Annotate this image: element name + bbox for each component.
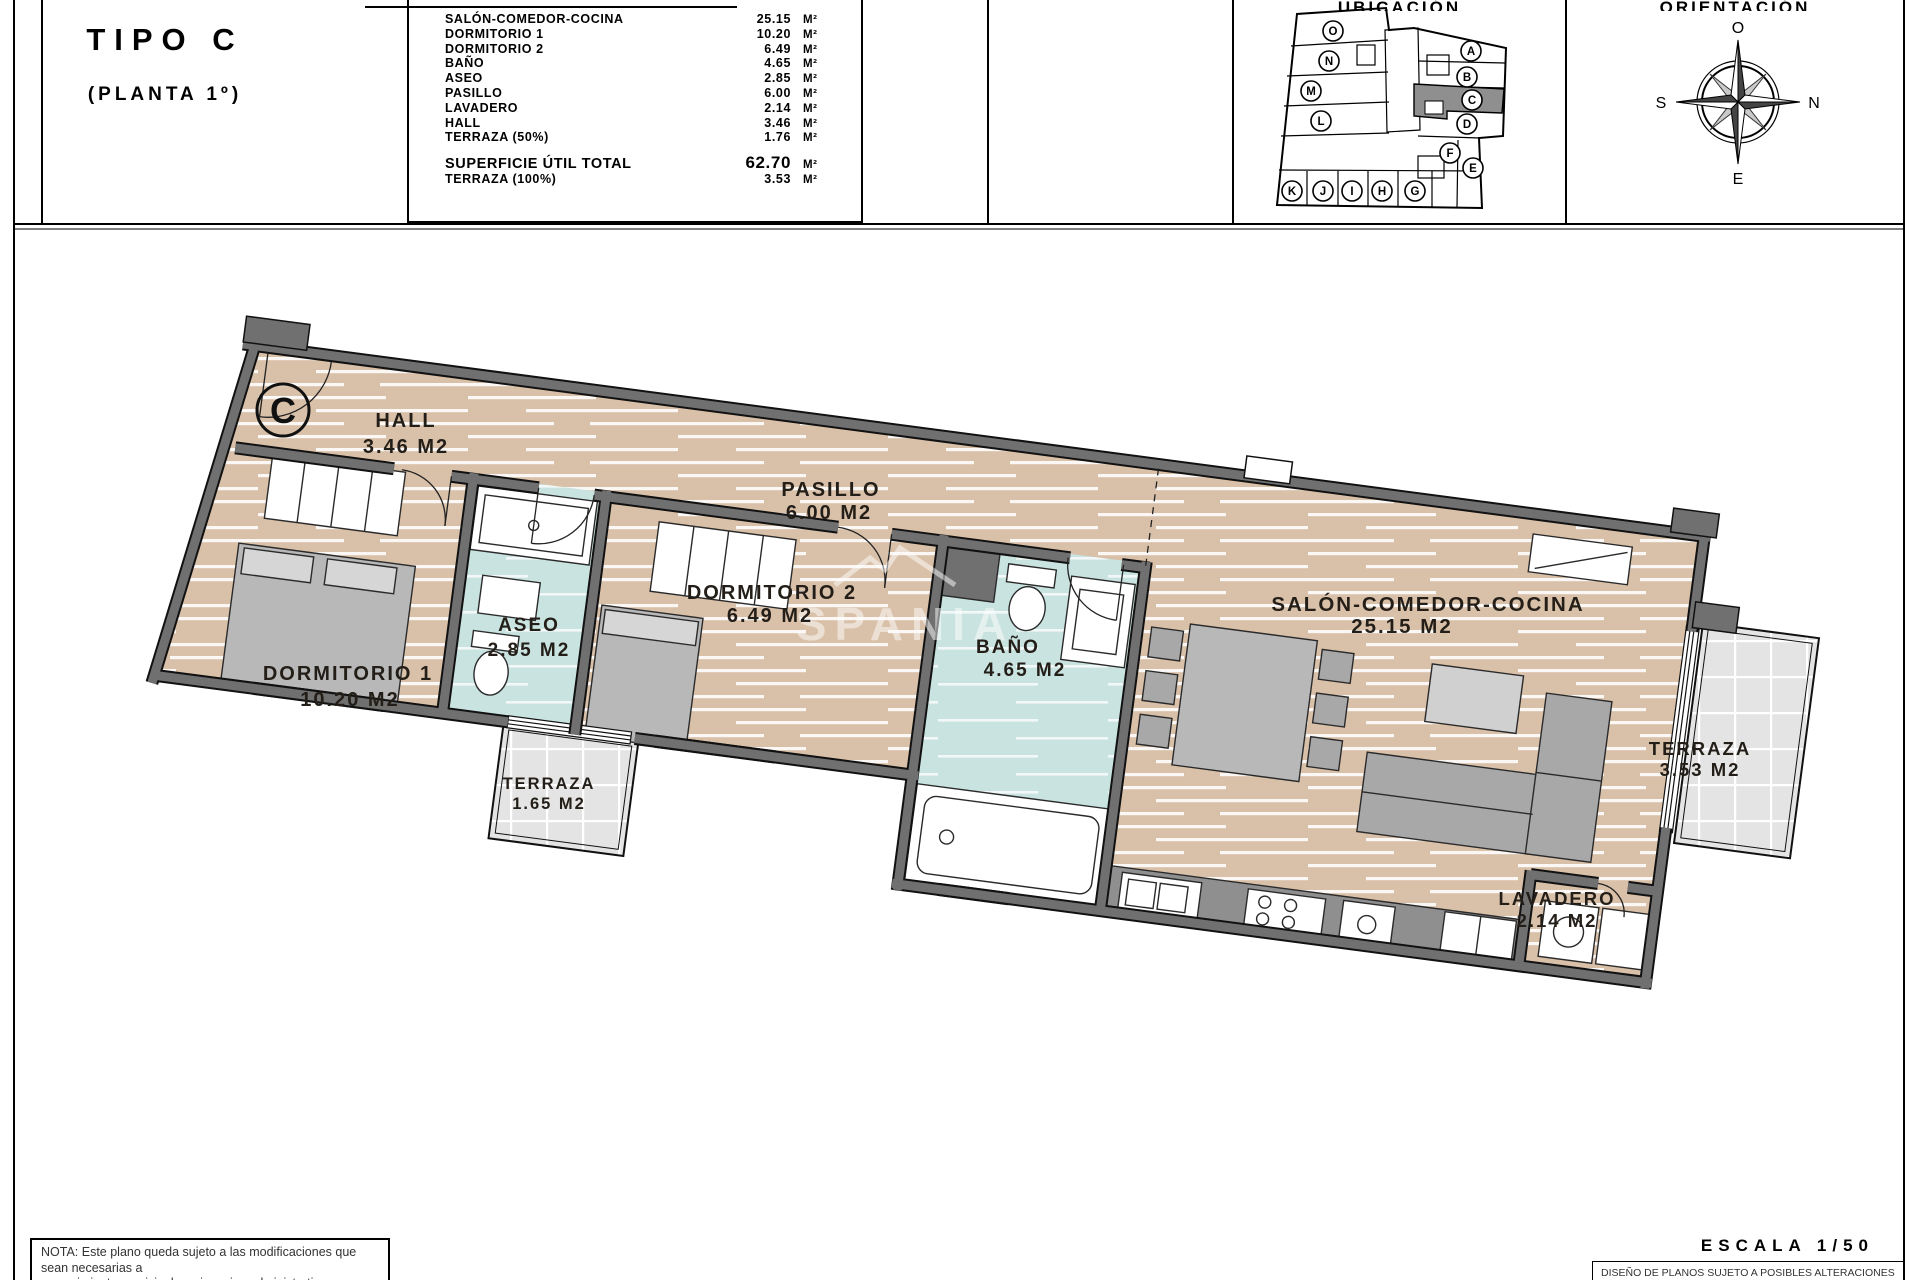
site-unit-label: E — [1469, 163, 1477, 175]
row-label: DORMITORIO 1 — [445, 27, 725, 41]
row-label: PASILLO — [445, 86, 725, 100]
table-row: LAVADERO2.14M² — [445, 101, 833, 116]
site-unit-label: L — [1317, 116, 1324, 128]
chair — [1136, 714, 1172, 748]
site-unit-label: F — [1446, 148, 1453, 160]
row-label: TERRAZA (50%) — [445, 130, 725, 144]
site-unit-label: M — [1306, 86, 1316, 98]
scale-label: ESCALA 1/50 — [1640, 1236, 1904, 1256]
site-unit-label: A — [1467, 46, 1475, 58]
orientacion-title: ORIENTACIÓN — [1660, 0, 1811, 11]
plan-canvas: O N M L A B C D F E K J I H G — [0, 0, 1920, 1280]
orientacion-header: ORIENTACIÓN — [1566, 0, 1904, 11]
unit-marker-letter: C — [270, 390, 296, 431]
table-row: DORMITORIO 26.49M² — [445, 42, 833, 57]
row-label: HALL — [445, 116, 725, 130]
total-unit: M² — [803, 159, 833, 171]
room-area-dormitorio1: 10.20 M2 — [300, 689, 399, 711]
row-label: BAÑO — [445, 56, 725, 70]
title-block: TIPO C (PLANTA 1º) — [40, 22, 290, 106]
site-unit-label: K — [1288, 186, 1297, 198]
row-value: 2.14 — [725, 101, 791, 115]
room-area-hall: 3.46 M2 — [363, 436, 449, 458]
room-area-bano: 4.65 M2 — [984, 660, 1067, 681]
room-area-terraza-right: 3.53 M2 — [1660, 759, 1741, 780]
room-label-terraza-left: TERRAZA — [503, 775, 596, 793]
terrace-pillar — [1692, 602, 1739, 634]
chair — [1313, 693, 1349, 727]
side-table — [1425, 664, 1524, 734]
compass-south-label: S — [1656, 95, 1667, 112]
chair — [1307, 737, 1343, 771]
site-map: O N M L A B C D F E K J I H G — [1277, 8, 1506, 208]
table-extra-row: TERRAZA (100%)3.53M² — [445, 172, 833, 187]
type-title: TIPO C — [40, 22, 290, 58]
room-area-pasillo: 6.00 M2 — [786, 502, 872, 524]
row-unit: M² — [803, 132, 833, 144]
chair — [1148, 627, 1184, 661]
room-label-salon: SALÓN-COMEDOR-COCINA — [1271, 592, 1584, 616]
site-unit-label: N — [1325, 56, 1333, 68]
site-unit-label: H — [1378, 186, 1386, 198]
nota-line: NOTA: Este plano queda sujeto a las modi… — [41, 1245, 379, 1276]
table-row: DORMITORIO 110.20M² — [445, 27, 833, 42]
table-total-row: SUPERFICIE ÚTIL TOTAL62.70M² — [445, 153, 833, 172]
total-value: 62.70 — [725, 153, 791, 173]
row-value: 25.15 — [725, 12, 791, 26]
corner-pillar — [1671, 508, 1720, 538]
nota-line: requerimiento municipal y exigencias adm… — [41, 1276, 379, 1280]
room-label-bano: BAÑO — [976, 636, 1040, 658]
row-value: 4.65 — [725, 56, 791, 70]
disclaimer-line: DISEÑO DE PLANOS SUJETO A POSIBLES ALTER… — [1601, 1266, 1895, 1280]
row-unit: M² — [803, 58, 833, 70]
row-unit: M² — [803, 103, 833, 115]
room-label-dormitorio1: DORMITORIO 1 — [263, 663, 433, 685]
table-row: HALL3.46M² — [445, 116, 833, 131]
table-row: ASEO2.85M² — [445, 71, 833, 86]
row-value: 3.46 — [725, 116, 791, 130]
room-label-pasillo: PASILLO — [781, 479, 880, 501]
room-label-dormitorio2: DORMITORIO 2 — [687, 582, 857, 604]
compass-north-label: N — [1808, 95, 1820, 112]
row-unit: M² — [803, 73, 833, 85]
room-label-lavadero: LAVADERO — [1498, 888, 1615, 909]
site-unit-label: I — [1350, 186, 1353, 198]
chair — [1142, 671, 1178, 705]
nota-box: NOTA: Este plano queda sujeto a las modi… — [30, 1238, 390, 1280]
row-value: 6.00 — [725, 86, 791, 100]
row-unit: M² — [803, 118, 833, 130]
chair — [1318, 649, 1354, 683]
room-area-aseo: 2.85 M2 — [488, 640, 571, 661]
sink — [478, 575, 540, 620]
table-row: PASILLO6.00M² — [445, 86, 833, 101]
dining-table — [1172, 624, 1317, 781]
row-label: LAVADERO — [445, 101, 725, 115]
row-unit: M² — [803, 29, 833, 41]
row-value: 10.20 — [725, 27, 791, 41]
room-label-aseo: ASEO — [498, 615, 560, 636]
site-unit-label: O — [1329, 26, 1338, 38]
areas-table: SALÓN-COMEDOR-COCINA25.15M² DORMITORIO 1… — [407, 0, 863, 223]
row-value: 2.85 — [725, 71, 791, 85]
disclaimer-box: DISEÑO DE PLANOS SUJETO A POSIBLES ALTER… — [1592, 1261, 1904, 1280]
floor-title: (PLANTA 1º) — [40, 84, 290, 106]
ubicacion-header: UBICACIÓN — [1233, 0, 1566, 11]
site-unit-label: G — [1411, 186, 1420, 198]
site-unit-label: B — [1463, 72, 1471, 84]
table-row: TERRAZA (50%)1.76M² — [445, 130, 833, 145]
row-label: SALÓN-COMEDOR-COCINA — [445, 12, 725, 26]
extra-label: TERRAZA (100%) — [445, 172, 725, 186]
total-label: SUPERFICIE ÚTIL TOTAL — [445, 156, 725, 172]
site-unit-label-highlighted: C — [1468, 95, 1476, 107]
row-label: ASEO — [445, 71, 725, 85]
room-area-dormitorio2: 6.49 M2 — [727, 605, 813, 627]
row-unit: M² — [803, 44, 833, 56]
row-unit: M² — [803, 14, 833, 26]
room-area-lavadero: 2.14 M2 — [1517, 910, 1598, 931]
site-unit-label: D — [1463, 119, 1471, 131]
row-label: DORMITORIO 2 — [445, 42, 725, 56]
compass-rose: O N E S — [1656, 20, 1820, 188]
compass-west-label: O — [1732, 20, 1744, 37]
room-label-terraza-right: TERRAZA — [1649, 738, 1751, 759]
site-unit-label: J — [1320, 186, 1326, 198]
bathroom-closet — [940, 546, 1000, 603]
extra-unit: M² — [803, 174, 833, 186]
table-row: BAÑO4.65M² — [445, 56, 833, 71]
room-area-terraza-left: 1.65 M2 — [512, 795, 586, 813]
compass-east-label: E — [1733, 171, 1744, 188]
room-label-hall: HALL — [375, 410, 436, 432]
floorplan-sheet: O N M L A B C D F E K J I H G — [0, 0, 1920, 1280]
table-row: SALÓN-COMEDOR-COCINA25.15M² — [445, 12, 833, 27]
compass-main-points — [1676, 40, 1800, 164]
site-unit-c-door — [1425, 101, 1443, 114]
row-value: 1.76 — [725, 130, 791, 144]
extra-value: 3.53 — [725, 172, 791, 186]
row-unit: M² — [803, 88, 833, 100]
room-area-salon: 25.15 M2 — [1351, 615, 1452, 638]
row-value: 6.49 — [725, 42, 791, 56]
ubicacion-title: UBICACIÓN — [1338, 0, 1461, 11]
